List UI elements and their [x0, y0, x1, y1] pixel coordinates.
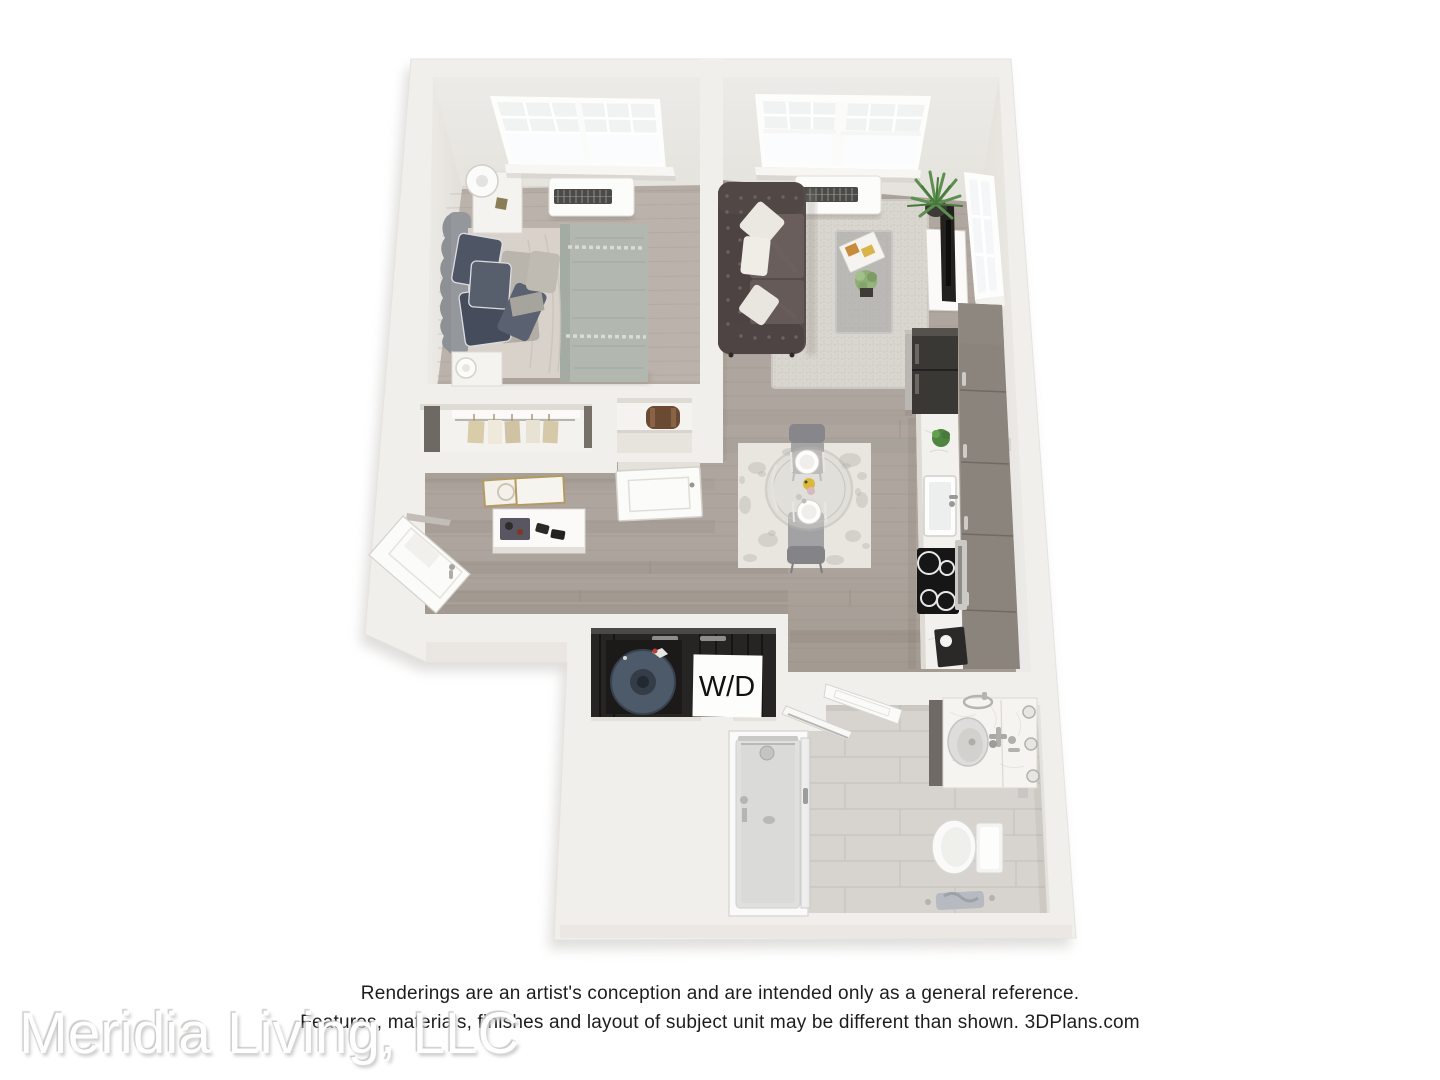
svg-text:W/D: W/D: [699, 671, 755, 703]
